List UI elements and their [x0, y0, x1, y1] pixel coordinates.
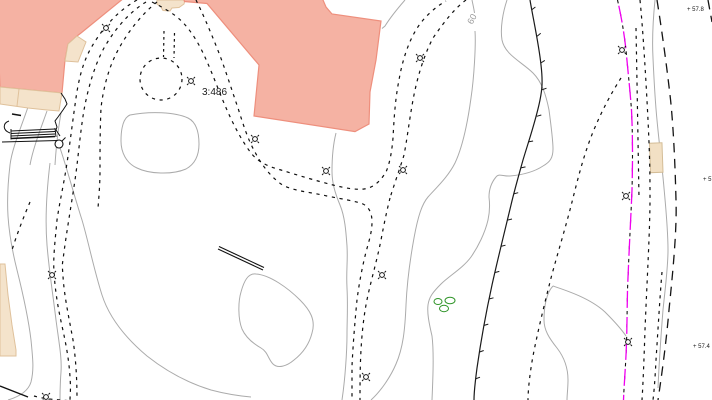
svg-text:+ 57.8: + 57.8: [687, 7, 705, 13]
svg-text:3:486: 3:486: [202, 87, 227, 98]
svg-text:+ 57.6: + 57.6: [703, 177, 712, 183]
svg-text:+ 57.4: + 57.4: [693, 344, 711, 350]
